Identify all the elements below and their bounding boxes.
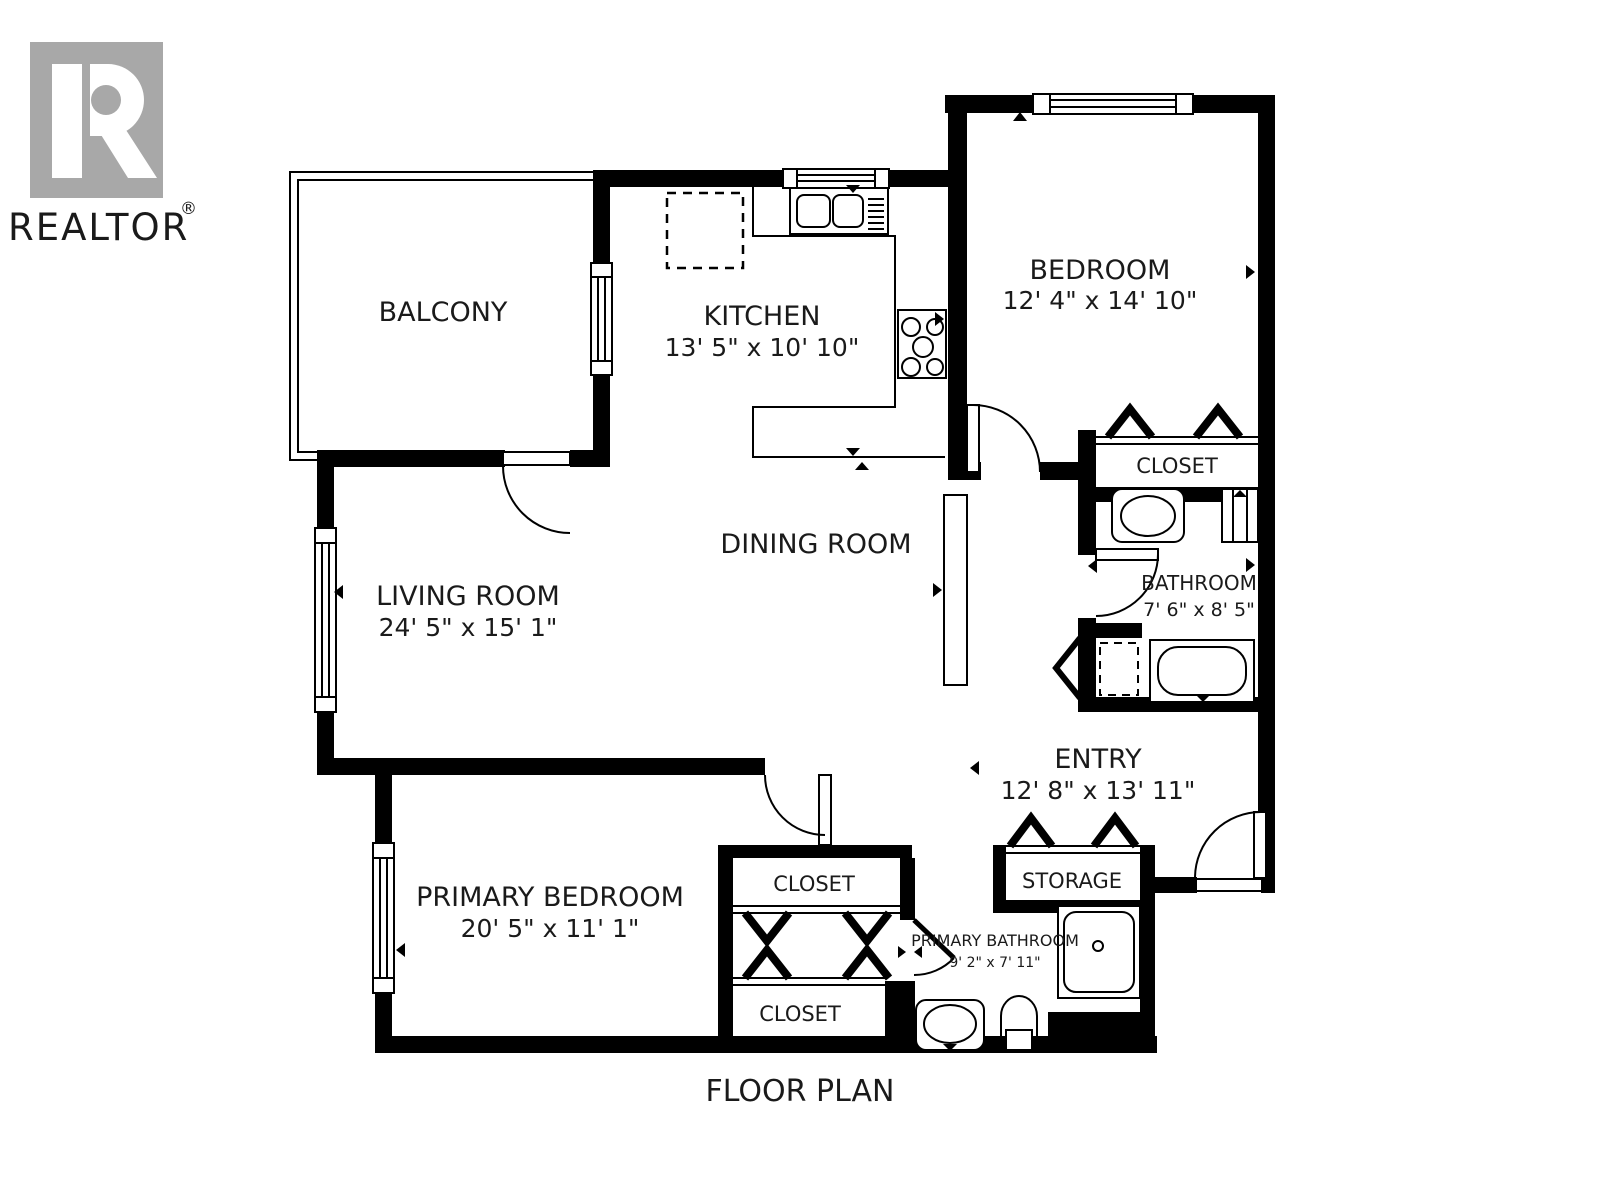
wall-corner-block [1048, 1012, 1142, 1040]
upper-closet-bifold-door-icon [733, 906, 900, 941]
direction-arrow [1088, 559, 1097, 573]
primary-bedroom-door-swing-icon [765, 775, 831, 845]
living-room-window-icon [315, 528, 336, 712]
wall [718, 845, 912, 858]
bedroom-dimensions: 12' 4" x 14' 10" [1003, 286, 1198, 315]
living-room-label: LIVING ROOM [376, 581, 560, 612]
wall [900, 981, 915, 1053]
primary-toilet-icon [1001, 996, 1037, 1050]
bathroom-label: BATHROOM [1141, 571, 1257, 595]
entry-door-swing-icon [1195, 812, 1266, 893]
direction-arrow [846, 448, 860, 456]
dishwasher-dashed-icon [667, 193, 743, 268]
realtor-logo-r-stem [52, 64, 82, 178]
wall [1155, 877, 1199, 893]
direction-arrow [898, 946, 906, 958]
primary-bedroom-window-icon [373, 843, 394, 993]
wall [1078, 487, 1096, 555]
direction-arrow [855, 462, 869, 470]
direction-arrow [1013, 112, 1027, 121]
entry-dimensions: 12' 8" x 13' 11" [1001, 776, 1196, 805]
entry-label: ENTRY [1054, 744, 1142, 775]
bedroom-closet-label: CLOSET [1136, 454, 1218, 478]
registered-trademark-icon: ® [180, 199, 197, 219]
bathroom-toilet-icon [1222, 489, 1258, 542]
realtor-logo-text: REALTOR [8, 206, 189, 249]
wall [1260, 877, 1275, 893]
bathroom-dimensions: 7' 6" x 8' 5" [1143, 599, 1255, 621]
dining-room-label: DINING ROOM [720, 529, 911, 560]
wall [593, 170, 967, 187]
bedroom-window-icon [1033, 94, 1193, 114]
direction-arrow [1246, 558, 1255, 572]
direction-arrow [933, 583, 942, 597]
wall [948, 95, 967, 480]
lower-closet-label: CLOSET [759, 1002, 841, 1026]
bathroom-vanity-sink-icon [1112, 489, 1184, 542]
upper-closet-label: CLOSET [773, 872, 855, 896]
direction-arrow [396, 943, 405, 957]
lower-closet-bifold-door-icon [733, 950, 889, 985]
plan-title: FLOOR PLAN [706, 1074, 895, 1109]
wall [1140, 845, 1155, 1053]
wall [570, 450, 610, 467]
bedroom-label: BEDROOM [1030, 255, 1171, 286]
living-room-dimensions: 24' 5" x 15' 1" [379, 613, 558, 642]
primary-vanity-sink-icon [916, 1000, 984, 1051]
laundry-nook-angled-door-icon [1056, 638, 1080, 698]
direction-arrow [970, 761, 979, 775]
wall [375, 758, 765, 775]
realtor-logo-r-counter [91, 85, 121, 115]
balcony-wall-window-icon [591, 263, 612, 375]
balcony-door-swing-icon [503, 452, 570, 533]
bedroom-closet-bifold-door-icon [1096, 409, 1258, 444]
wall [718, 845, 733, 1053]
primary-bathroom-dimensions: 9' 2" x 7' 11" [949, 955, 1040, 971]
realtor-logo: REALTOR ® [8, 42, 197, 249]
primary-bathroom-label: PRIMARY BATHROOM [911, 931, 1079, 950]
balcony-label: BALCONY [379, 297, 508, 328]
primary-bedroom-label: PRIMARY BEDROOM [416, 882, 684, 913]
direction-arrow [1246, 265, 1255, 279]
wall [900, 858, 915, 920]
wall [375, 1036, 1157, 1053]
bedroom-door-swing-icon [967, 405, 1040, 472]
shower-icon [1058, 906, 1140, 998]
floor-plan-page: REALTOR ® [0, 0, 1600, 1200]
primary-bedroom-dimensions: 20' 5" x 11' 1" [461, 914, 640, 943]
dining-pass-through-half-wall [944, 495, 967, 685]
wall [1078, 623, 1142, 638]
storage-label: STORAGE [1022, 869, 1122, 893]
kitchen-window-icon [783, 169, 889, 188]
wall [885, 981, 900, 1053]
bathtub-icon [1150, 640, 1254, 702]
kitchen-sink-icon [790, 188, 888, 234]
storage-bifold-door-icon [1006, 818, 1140, 853]
kitchen-label: KITCHEN [704, 301, 821, 332]
wall [317, 450, 505, 467]
floor-plan-drawing: REALTOR ® [0, 0, 1600, 1200]
kitchen-dimensions: 13' 5" x 10' 10" [665, 333, 860, 362]
washer-dryer-dashed-icon [1100, 643, 1138, 695]
